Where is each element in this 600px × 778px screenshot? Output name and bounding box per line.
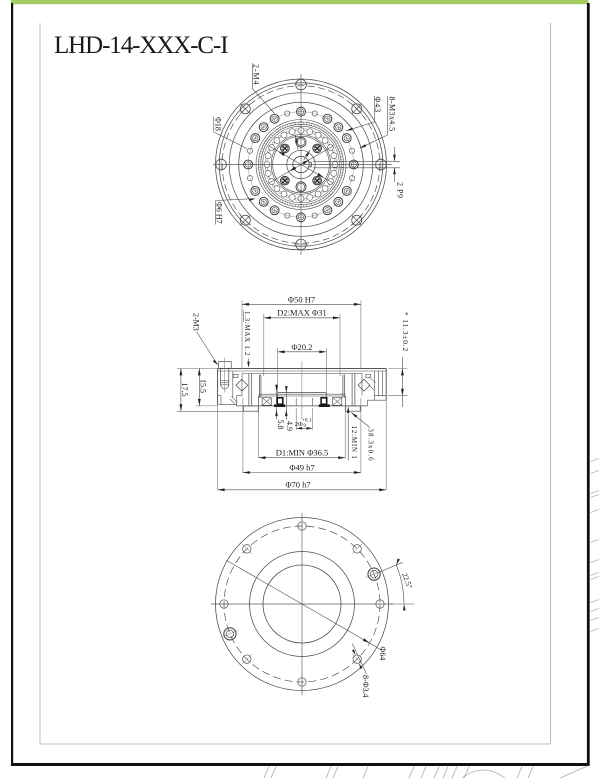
svg-text:15.5: 15.5: [199, 379, 208, 393]
svg-text:4.9: 4.9: [285, 421, 294, 431]
svg-text:Φ49 h7: Φ49 h7: [289, 463, 314, 473]
svg-text:Φ20.2: Φ20.2: [291, 342, 312, 352]
svg-text:LHD-14-XXX-C-I: LHD-14-XXX-C-I: [54, 32, 228, 59]
svg-text:1.3:MAX 1.2: 1.3:MAX 1.2: [243, 311, 251, 356]
svg-text:Φ18: Φ18: [213, 117, 222, 131]
svg-text:D1:MIN Φ36.5: D1:MIN Φ36.5: [276, 448, 329, 458]
svg-text:8-Φ3.4: 8-Φ3.4: [361, 675, 370, 698]
svg-text:D2:MAX Φ31: D2:MAX Φ31: [277, 307, 326, 317]
svg-text:Φ64: Φ64: [378, 647, 387, 661]
svg-text:* 11.3±0.2: * 11.3±0.2: [401, 312, 410, 352]
svg-text:5.8: 5.8: [276, 420, 285, 430]
svg-text:17.5: 17.5: [180, 383, 189, 397]
svg-text:38.3x0.6: 38.3x0.6: [366, 428, 374, 461]
svg-text:2 P9: 2 P9: [395, 182, 404, 198]
svg-text:22.5°: 22.5°: [400, 571, 414, 589]
svg-text:12:MIN 1: 12:MIN 1: [350, 426, 358, 460]
svg-text:2-M4: 2-M4: [252, 64, 261, 85]
svg-text:Φ70 h7: Φ70 h7: [285, 479, 310, 489]
svg-text:8-M3x4.5: 8-M3x4.5: [387, 97, 396, 132]
svg-text:2-M3: 2-M3: [192, 313, 201, 331]
svg-text:Φ50 H7: Φ50 H7: [288, 294, 315, 304]
svg-text:+0.1: +0.1: [302, 418, 312, 424]
